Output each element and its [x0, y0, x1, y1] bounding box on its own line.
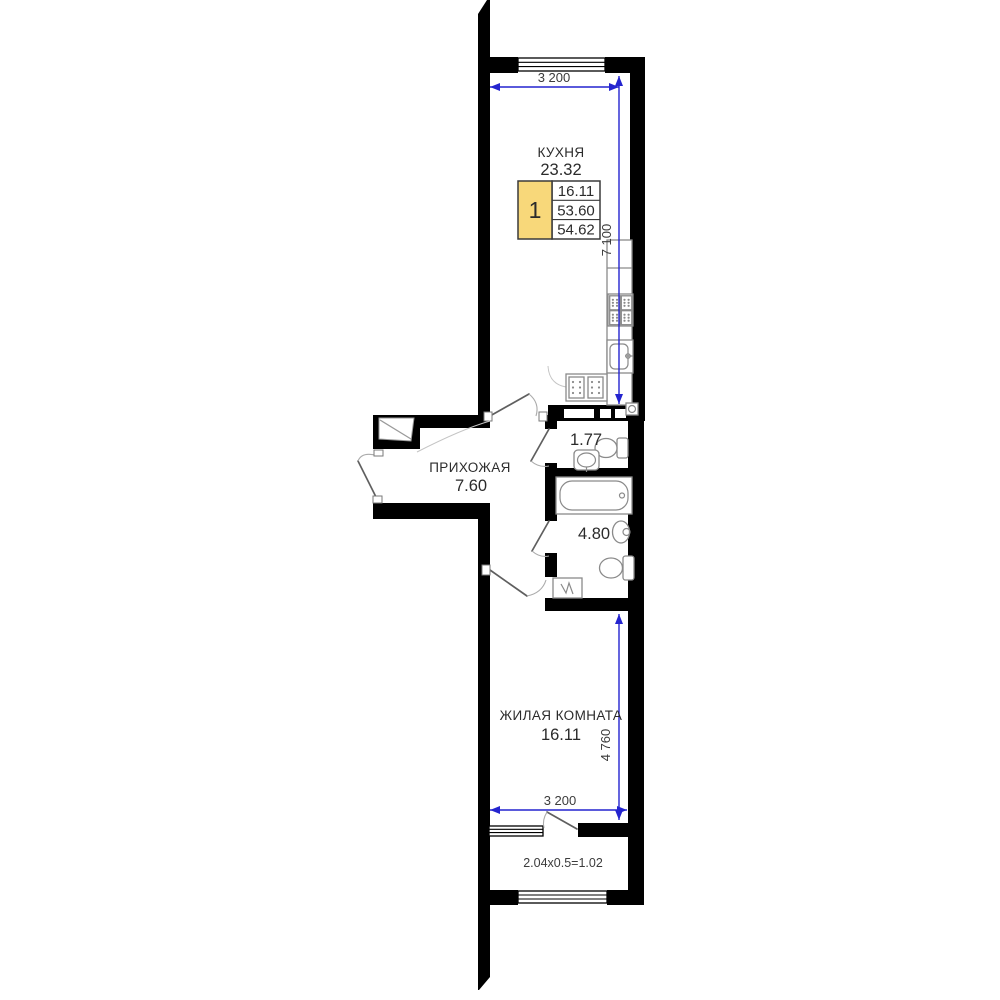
wc-sink-icon: [574, 450, 599, 472]
balcony-door-arc: [543, 812, 547, 828]
bathroom-area-label: 4.80: [578, 525, 610, 543]
wc-door-leaf: [531, 429, 549, 461]
vent-slot: [615, 409, 626, 418]
wall-hall-bottom: [373, 503, 490, 519]
entrance-door: [358, 450, 383, 503]
kitchen-door-leaf: [490, 394, 529, 416]
balcony-door: [543, 812, 577, 829]
balcony-area-calculation: 2.04x0.5=1.02: [523, 856, 603, 870]
living-room-window: [489, 826, 543, 836]
door-hinge: [484, 412, 492, 421]
door-hinge: [374, 450, 383, 456]
apartment-area-value: 53.60: [557, 202, 595, 219]
vent-slot: [564, 409, 594, 418]
dim-kitchen-depth-label: 7 100: [599, 224, 614, 257]
vent-duct-icon: [626, 403, 638, 415]
bathroom-toilet-icon: [600, 556, 635, 580]
dim-top-width-label: 3 200: [538, 70, 571, 85]
dim-bottom-width: 3 200: [490, 793, 627, 814]
living-room-name-label: ЖИЛАЯ КОМНАТА: [500, 708, 623, 723]
wall-balcony-bottom-right: [607, 890, 642, 905]
door-hinge: [539, 412, 547, 421]
wc-area-label: 1.77: [570, 431, 602, 449]
vent-slot: [600, 409, 611, 418]
floor-plan-canvas: 3 200 7 100 4 760 3 200 2.04x0.5=1.02 КУ…: [0, 0, 1000, 1000]
total-area-value: 54.62: [557, 222, 595, 239]
living-room-door-arc: [527, 580, 546, 596]
living-room-door-leaf: [490, 570, 527, 596]
stove-icon: [608, 294, 633, 326]
kitchen-name-label: КУХНЯ: [537, 145, 584, 160]
entry-niche: [379, 418, 414, 441]
balcony-door-leaf: [547, 812, 577, 829]
entrance-door-leaf: [358, 461, 378, 501]
door-hinge: [373, 496, 382, 503]
bathroom-sink-icon: [613, 521, 631, 543]
bathroom-door: [532, 521, 549, 556]
dim-room-depth-label: 4 760: [598, 729, 613, 762]
bathtub-icon: [556, 477, 632, 514]
bathroom-door-leaf: [532, 521, 549, 551]
hallway-name-label: ПРИХОЖАЯ: [429, 460, 511, 475]
hallway-area-label: 7.60: [455, 477, 487, 495]
dim-bottom-width-label: 3 200: [544, 793, 577, 808]
dim-top-width: 3 200: [490, 70, 619, 91]
floor-plan-drawing: 3 200 7 100 4 760 3 200 2.04x0.5=1.02 КУ…: [0, 0, 1000, 1000]
wall-kitchen-top-left: [488, 57, 518, 73]
apartment-info-table: 1 16.11 53.60 54.62: [518, 181, 600, 239]
living-room-door: [482, 565, 546, 596]
kitchen-fixtures: [566, 240, 638, 415]
balcony-window: [518, 891, 607, 903]
hob-icon: [566, 374, 607, 401]
kitchen-corner-line: [548, 366, 566, 387]
living-area-value: 16.11: [558, 183, 594, 200]
wc-door: [531, 429, 549, 466]
wall-bath-bottom: [545, 598, 640, 611]
wall-balcony-bottom-left: [478, 890, 518, 905]
kitchen-door-arc: [529, 394, 537, 416]
kitchen-door: [484, 394, 547, 421]
kitchen-sink-icon: [607, 340, 633, 373]
kitchen-area-label: 23.32: [540, 161, 581, 179]
door-hinge: [482, 565, 490, 575]
living-room-area-label: 16.11: [541, 726, 581, 744]
wall-living-bottom-right: [578, 823, 632, 837]
wall-left-lower: [478, 503, 490, 990]
rooms-count-value: 1: [529, 197, 542, 223]
washing-machine-icon: [553, 578, 582, 598]
